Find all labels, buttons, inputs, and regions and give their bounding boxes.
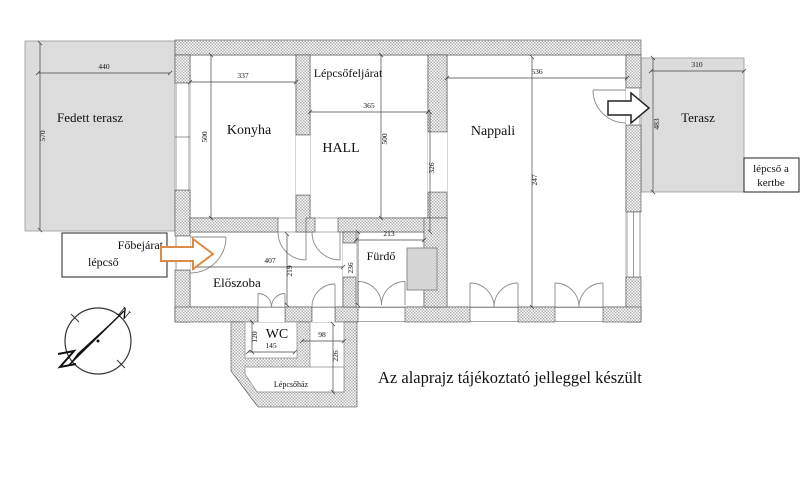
room-label-konyha: Konyha xyxy=(227,123,272,138)
dim-value: 365 xyxy=(363,101,375,110)
floor-plan-drawing: 440 570 337 500 365 500 326 536 247 310 … xyxy=(0,0,800,495)
wall-segment xyxy=(626,55,641,88)
wall-segment xyxy=(405,307,470,322)
bathtub xyxy=(407,248,437,290)
wall-segment xyxy=(518,307,555,322)
dim-value: 407 xyxy=(264,256,276,265)
wall-segment xyxy=(175,40,641,55)
room-label-lepcsohaz: Lépcsőház xyxy=(274,380,309,389)
wall-segment xyxy=(190,218,278,232)
wall-segment xyxy=(343,232,356,243)
compass-center-dot xyxy=(97,340,100,343)
dim-value: 440 xyxy=(98,62,110,71)
hall-living-opening xyxy=(428,132,447,192)
wall-segment xyxy=(285,307,312,322)
wall-segment xyxy=(335,307,358,322)
dim-value: 326 xyxy=(427,162,436,174)
room-label-nappali: Nappali xyxy=(471,124,515,139)
kitchen-hall-opening xyxy=(296,135,310,195)
dim-value: 213 xyxy=(383,229,395,238)
dim-value: 98 xyxy=(318,330,326,339)
dim-value: 236 xyxy=(346,262,355,274)
compass-north-letter: N xyxy=(114,304,133,323)
wall-segment xyxy=(175,55,190,83)
room-label-wc: WC xyxy=(266,327,289,342)
garden-stairs-annotation: lépcső a kertbe xyxy=(744,158,799,192)
dim-value: 120 xyxy=(250,331,259,343)
wall-segment xyxy=(428,55,447,132)
room-label-terasz: Terasz xyxy=(681,110,715,125)
disclaimer-note: Az alaprajz tájékoztató jelleggel készül… xyxy=(378,368,642,387)
corridor-door-opening xyxy=(312,307,335,322)
floor-plan-page: 440 570 337 500 365 500 326 536 247 310 … xyxy=(0,0,800,495)
dim-value: 247 xyxy=(530,174,539,186)
wall-segment xyxy=(626,125,641,212)
wall-segment xyxy=(306,218,315,232)
wc-door-opening xyxy=(258,307,285,322)
dim-value: 337 xyxy=(237,71,249,80)
dim-value: 570 xyxy=(38,130,47,142)
dim-value: 219 xyxy=(285,265,294,277)
wall-segment xyxy=(343,277,356,307)
dim-value: 536 xyxy=(531,67,543,76)
wall-segment xyxy=(296,55,310,135)
wall-segment xyxy=(603,307,641,322)
dim-value: 500 xyxy=(200,131,209,143)
dim-value: 500 xyxy=(380,133,389,145)
entrance-title: Főbejárat xyxy=(118,238,164,252)
garden-stairs-line2: kertbe xyxy=(757,177,785,189)
dim-value: 483 xyxy=(652,118,661,130)
wall-segment xyxy=(175,307,258,322)
room-label-hall: HALL xyxy=(322,141,359,156)
compass-rose: N xyxy=(58,304,133,374)
room-label-eloszoba: Előszoba xyxy=(213,275,261,290)
wall-segment xyxy=(175,190,190,236)
entrance-subtitle: lépcső xyxy=(88,255,119,269)
wall-segment xyxy=(428,192,447,218)
dim-value: 145 xyxy=(265,341,277,350)
anteroom-floor xyxy=(190,232,343,307)
dim-value: 226 xyxy=(331,350,340,362)
garden-stairs-line1: lépcső a xyxy=(753,163,789,175)
window-west xyxy=(175,83,190,190)
room-label-furdo: Fürdő xyxy=(367,249,396,263)
room-label-lepcsofeljarat: Lépcsőfeljárat xyxy=(314,66,383,80)
dim-value: 310 xyxy=(691,60,703,69)
room-label-fedett-terasz: Fedett terasz xyxy=(57,110,123,125)
